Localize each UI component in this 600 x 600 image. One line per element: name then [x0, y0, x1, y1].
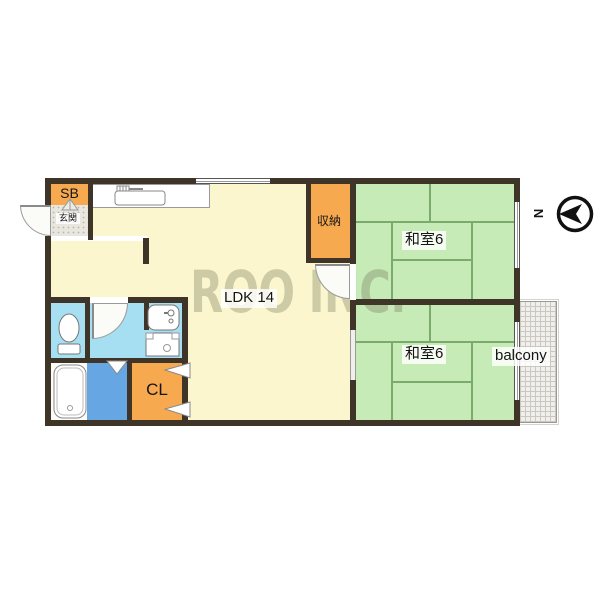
closet-folding-door-icon [164, 362, 191, 379]
room-label-storage: 収納 [306, 212, 352, 229]
tatami-line [429, 184, 431, 221]
bathroom-door-icon [106, 360, 128, 375]
wall-storage-bottom [306, 258, 356, 263]
wall-between-japanese-rooms [350, 299, 520, 305]
window-kitchen [196, 178, 270, 184]
closet-folding-door-icon [164, 401, 191, 418]
tatami-line [471, 341, 473, 420]
tatami-line [356, 341, 514, 343]
wall-bottom [45, 420, 520, 426]
wall-toilet-divider [85, 303, 90, 358]
room-label-japanese-top: 和室6 [402, 231, 446, 250]
bathtub-icon [53, 364, 87, 419]
floor-plan: ROO INC. [0, 0, 600, 600]
tatami-line [391, 381, 471, 383]
room-label-closet: CL [132, 380, 182, 400]
wall-entrance-stub [143, 238, 149, 264]
tatami-line [429, 305, 431, 341]
japanese-room-door-opening [350, 264, 356, 300]
room-label-balcony: balcony [492, 347, 550, 366]
wall-top [45, 178, 520, 184]
sliding-door-ldk-japanese [350, 330, 356, 380]
kitchen-sink-icon [114, 185, 170, 207]
toilet-icon [55, 312, 83, 358]
tatami-line [471, 221, 473, 299]
washbasin-icon [147, 304, 181, 332]
room-label-entrance: 玄関 [56, 213, 80, 224]
tatami-line [356, 221, 514, 223]
wall-entrance-side [88, 178, 93, 240]
washing-machine-icon [145, 332, 181, 358]
room-label-shoebox: SB [51, 185, 88, 201]
compass-north-label: N [531, 209, 546, 218]
room-label-ldk: LDK 14 [221, 289, 277, 308]
entrance-step [51, 236, 148, 241]
entrance-door-swing-icon [20, 205, 51, 236]
window-japanese-top [514, 202, 520, 268]
room-label-japanese-bottom: 和室6 [402, 345, 446, 364]
compass-north-icon [550, 192, 596, 236]
